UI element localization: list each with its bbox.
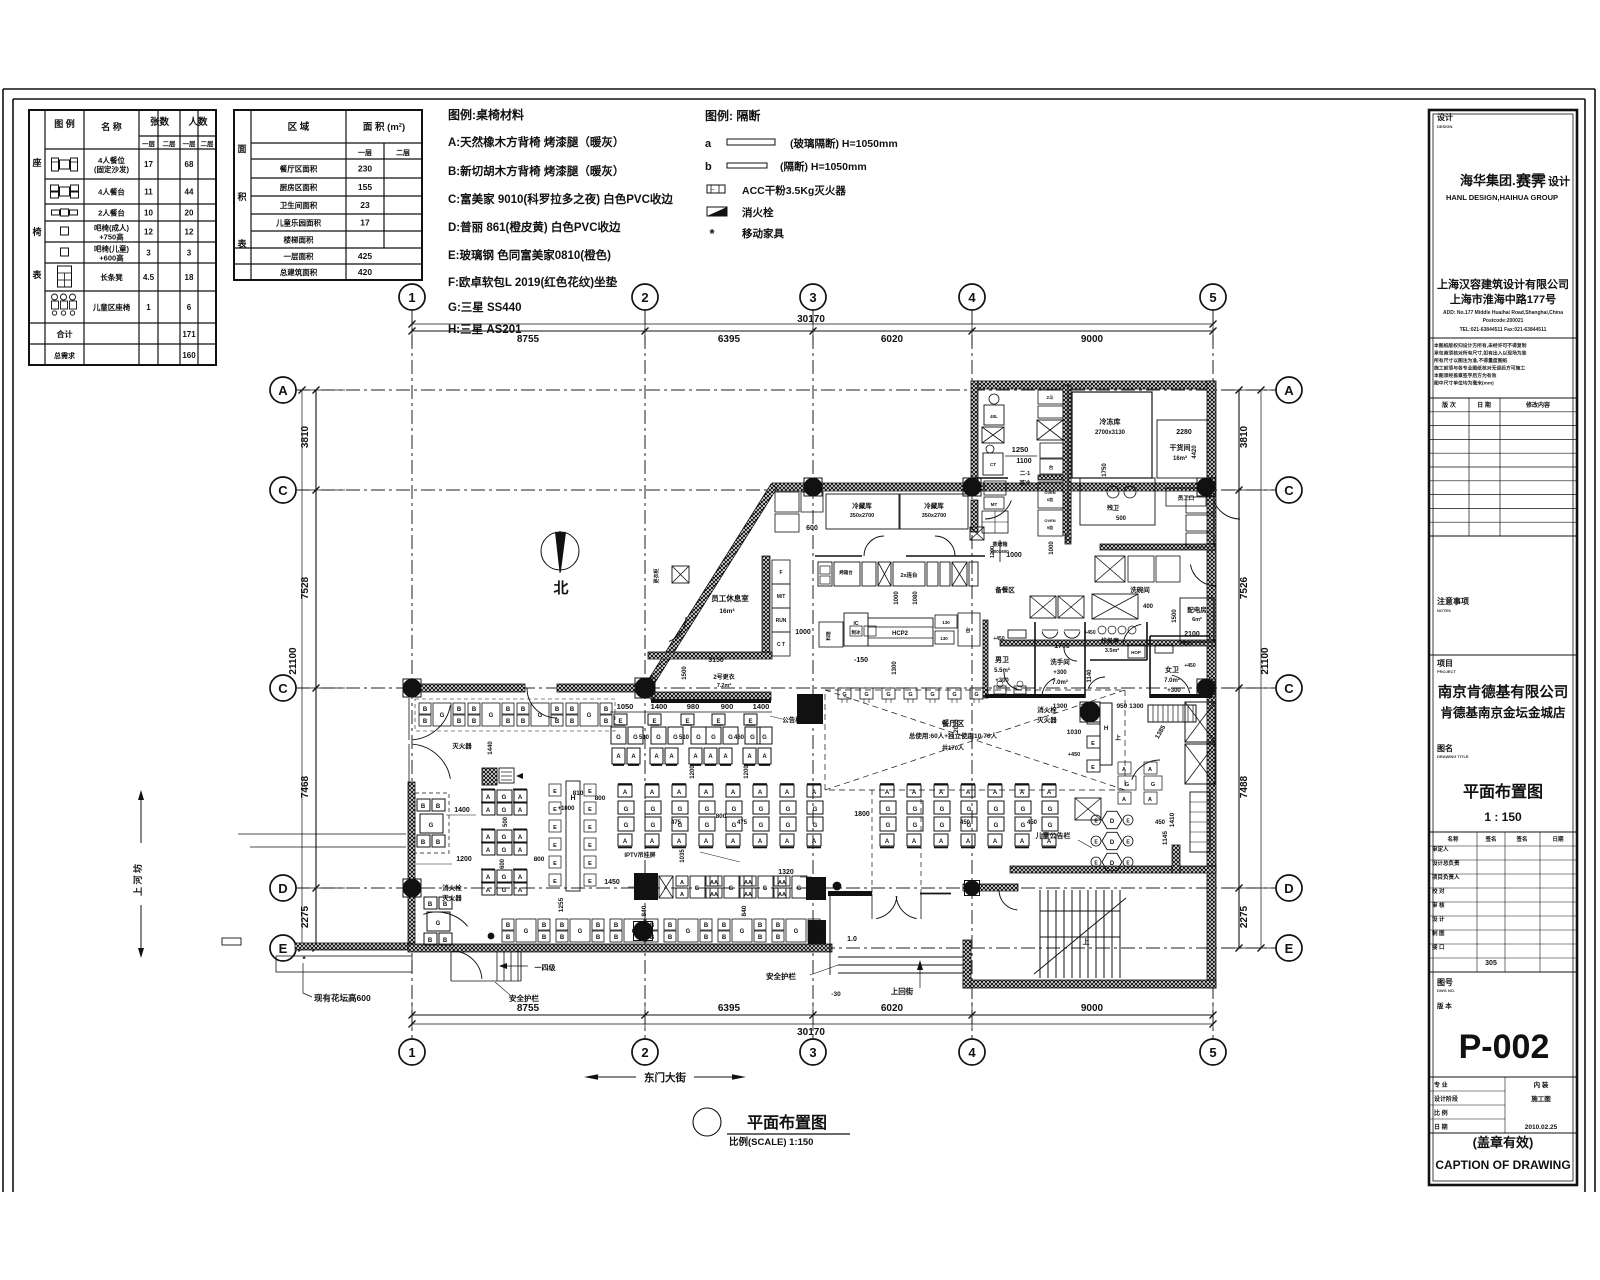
svg-text:425: 425: [358, 251, 372, 261]
svg-text:+300: +300: [1053, 670, 1067, 676]
svg-text:吧椅(儿童): 吧椅(儿童): [94, 244, 129, 254]
svg-text:8755: 8755: [517, 334, 540, 345]
svg-text:2275: 2275: [1239, 905, 1250, 928]
svg-text:5: 5: [1209, 290, 1216, 305]
svg-text:7.2m²: 7.2m²: [717, 682, 732, 689]
svg-text:HANL DESIGN,HAIHUA GROUP: HANL DESIGN,HAIHUA GROUP: [1446, 193, 1558, 202]
svg-text:30170: 30170: [797, 1027, 825, 1038]
svg-text:E: E: [588, 789, 592, 795]
svg-text:A: A: [623, 790, 628, 796]
svg-text:B: B: [457, 719, 462, 725]
svg-text:800: 800: [716, 813, 727, 820]
svg-text:5.5m²: 5.5m²: [994, 667, 1010, 674]
svg-text:二层: 二层: [201, 139, 215, 148]
svg-text:A: A: [714, 892, 718, 898]
svg-text:版 本: 版 本: [1436, 1001, 1452, 1010]
svg-text:B: B: [776, 935, 781, 941]
svg-text:G: G: [940, 823, 945, 829]
svg-text:上: 上: [1115, 734, 1121, 742]
svg-text:女卫: 女卫: [1165, 665, 1179, 674]
svg-text:G: G: [686, 929, 691, 935]
svg-text:1410: 1410: [1169, 812, 1176, 827]
svg-text:张数: 张数: [150, 116, 170, 128]
svg-text:1400: 1400: [753, 702, 770, 711]
svg-text:灭火器: 灭火器: [451, 741, 472, 750]
svg-text:B: B: [704, 935, 709, 941]
svg-text:冷藏库: 冷藏库: [852, 501, 872, 510]
svg-text:儿童公告栏: 儿童公告栏: [1035, 831, 1071, 840]
svg-text:C: C: [278, 483, 288, 498]
svg-text:2人餐台: 2人餐台: [98, 208, 125, 218]
svg-text:接 口: 接 口: [1432, 943, 1445, 951]
svg-text:A: A: [966, 790, 971, 796]
svg-text:1: 1: [408, 290, 415, 305]
svg-text:6: 6: [187, 303, 192, 312]
svg-text:E: E: [553, 879, 557, 885]
svg-text:B: B: [722, 935, 727, 941]
svg-text:B: B: [542, 923, 547, 929]
svg-text:日 期: 日 期: [1434, 1123, 1448, 1131]
svg-text:G: G: [429, 823, 434, 829]
svg-text:B: B: [436, 840, 441, 846]
svg-text:HCP2: HCP2: [892, 631, 909, 637]
svg-text:G: G: [502, 808, 507, 814]
svg-text:表: 表: [236, 238, 247, 249]
svg-text:本图纸版权归设计方所有,未经许可不得复制: 本图纸版权归设计方所有,未经许可不得复制: [1434, 342, 1527, 349]
svg-text:B: B: [472, 707, 477, 713]
svg-text:Postcode:200021: Postcode:200021: [1483, 318, 1524, 324]
svg-text:2x连台: 2x连台: [900, 571, 918, 579]
svg-text:4420: 4420: [1192, 445, 1198, 459]
svg-text:现有花坛高600: 现有花坛高600: [314, 993, 371, 1003]
svg-text:+300: +300: [1167, 688, 1181, 694]
svg-text:+450: +450: [1179, 641, 1190, 647]
svg-text:1255: 1255: [558, 897, 565, 912]
svg-text:4人餐位: 4人餐位: [98, 155, 125, 165]
svg-text:3: 3: [187, 249, 192, 258]
svg-text:签名: 签名: [1515, 835, 1527, 843]
svg-text:44: 44: [185, 188, 194, 197]
svg-text:B: B: [506, 935, 511, 941]
svg-text:G: G: [587, 713, 592, 719]
svg-text:G: G: [797, 886, 802, 892]
svg-text:7526: 7526: [1239, 576, 1250, 599]
svg-text:460: 460: [734, 735, 745, 741]
svg-text:G: G: [1048, 823, 1053, 829]
svg-text:E: E: [748, 719, 752, 725]
svg-text:E: E: [1285, 941, 1294, 956]
svg-text:MT: MT: [991, 502, 998, 507]
svg-text:A: A: [1122, 767, 1126, 773]
svg-text:B: B: [443, 902, 448, 908]
svg-text:A: A: [680, 880, 684, 886]
svg-text:G: G: [813, 807, 818, 813]
svg-text:P-002: P-002: [1459, 1028, 1550, 1066]
svg-text:安全护栏: 安全护栏: [766, 971, 796, 981]
svg-text:12: 12: [144, 228, 153, 237]
svg-text:350x2700: 350x2700: [850, 513, 874, 519]
svg-text:日期: 日期: [1552, 835, 1564, 843]
svg-text:B: B: [812, 923, 817, 929]
svg-text:PROJECT: PROJECT: [1437, 669, 1456, 674]
svg-text:G: G: [974, 692, 978, 698]
svg-text:G: G: [967, 807, 972, 813]
svg-text:A: A: [486, 888, 491, 894]
svg-text:475: 475: [671, 820, 682, 826]
svg-text:F: F: [779, 570, 782, 576]
svg-text:A: A: [704, 790, 709, 796]
svg-text:G: G: [864, 692, 868, 698]
svg-text:G: G: [711, 735, 716, 741]
svg-text:9000: 9000: [1081, 1003, 1104, 1014]
svg-text:台: 台: [965, 627, 970, 634]
svg-text:G: G: [1021, 823, 1026, 829]
svg-text:G: G: [524, 929, 529, 935]
svg-text:1200: 1200: [990, 546, 996, 558]
svg-text:8755: 8755: [517, 1003, 540, 1014]
svg-text:E: E: [553, 825, 557, 831]
svg-text:表: 表: [31, 269, 42, 280]
svg-text:2010.02.25: 2010.02.25: [1525, 1124, 1558, 1131]
svg-text:840: 840: [741, 905, 748, 916]
svg-text:TEL:021-63844511 Fax:021-63844: TEL:021-63844511 Fax:021-63844511: [1460, 327, 1547, 333]
svg-text:1000: 1000: [795, 629, 811, 636]
svg-text:450: 450: [1027, 820, 1038, 826]
svg-text:一层面积: 一层面积: [284, 251, 314, 261]
svg-text:设计: 设计: [1437, 112, 1453, 122]
svg-text:首冷: 首冷: [1019, 479, 1031, 487]
svg-text:B: B: [614, 923, 619, 929]
svg-text:E: E: [588, 825, 592, 831]
svg-text:B: B: [650, 923, 655, 929]
svg-text:2280: 2280: [1176, 429, 1192, 436]
svg-text:消火栓: 消火栓: [442, 883, 462, 892]
svg-text:A: A: [486, 795, 491, 801]
svg-text:图名: 图名: [1437, 743, 1453, 753]
svg-text:21100: 21100: [288, 647, 299, 675]
svg-text:B: B: [421, 840, 426, 846]
svg-text:审定人: 审定人: [1432, 845, 1449, 853]
svg-text:A: A: [993, 790, 998, 796]
svg-text:G: G: [705, 823, 710, 829]
svg-text:A: A: [486, 835, 491, 841]
svg-text:A: A: [782, 880, 786, 886]
svg-text:修改内容: 修改内容: [1525, 401, 1550, 409]
svg-text:北: 北: [553, 580, 568, 597]
svg-text:G: G: [1151, 782, 1155, 788]
svg-text:消火栓: 消火栓: [742, 206, 774, 219]
svg-text:D: D: [1110, 861, 1115, 867]
svg-text:G: G: [502, 888, 507, 894]
svg-text:1 : 150: 1 : 150: [1484, 810, 1522, 824]
svg-text:A: A: [812, 839, 817, 845]
svg-text:楼梯面积: 楼梯面积: [284, 235, 314, 245]
svg-text:名称: 名称: [1447, 835, 1459, 843]
svg-text:A: A: [518, 848, 523, 854]
svg-text:12: 12: [185, 228, 194, 237]
svg-text:800: 800: [595, 795, 606, 802]
svg-text:M/T: M/T: [777, 594, 786, 600]
svg-text:F:欧卓软包L 2019(红色花纹)坐垫: F:欧卓软包L 2019(红色花纹)坐垫: [448, 275, 618, 289]
svg-text:B: B: [506, 719, 511, 725]
svg-text:E: E: [553, 789, 557, 795]
svg-text:7.0m²: 7.0m²: [1164, 677, 1180, 684]
svg-text:D: D: [1110, 819, 1115, 825]
svg-text:移动家具: 移动家具: [742, 227, 784, 240]
svg-text:吧椅(成人): 吧椅(成人): [94, 223, 129, 233]
svg-text:160: 160: [182, 351, 196, 360]
svg-text:G: G: [740, 929, 745, 935]
svg-text:400: 400: [1143, 604, 1154, 610]
svg-text:上回街: 上回街: [891, 986, 914, 996]
svg-text:A:天然橡木方背椅 烤漆腿（暖灰）: A:天然橡木方背椅 烤漆腿（暖灰）: [448, 135, 624, 149]
svg-text:1800: 1800: [854, 811, 870, 818]
svg-text:A: A: [785, 790, 790, 796]
svg-text:2700x3130: 2700x3130: [1095, 430, 1126, 436]
svg-text:制冰: 制冰: [852, 629, 861, 636]
svg-text:A: A: [1122, 797, 1126, 803]
svg-text:G: G: [578, 929, 583, 935]
svg-text:A: A: [758, 839, 763, 845]
svg-text:B: B: [758, 923, 763, 929]
svg-text:长条凳: 长条凳: [100, 272, 123, 282]
svg-text:区 域: 区 域: [288, 121, 310, 133]
svg-text:E: E: [553, 861, 557, 867]
svg-text:+600高: +600高: [99, 253, 124, 263]
svg-text:B: B: [555, 707, 560, 713]
svg-text:C: C: [278, 681, 288, 696]
svg-text:2: 2: [641, 290, 648, 305]
svg-text:475: 475: [737, 820, 748, 826]
svg-text:1000: 1000: [1006, 552, 1022, 559]
svg-text:厨房区面积: 厨房区面积: [280, 182, 318, 192]
svg-text:B: B: [555, 719, 560, 725]
svg-text:A: A: [1020, 839, 1025, 845]
svg-text:A: A: [518, 875, 523, 881]
svg-text:A: A: [785, 839, 790, 845]
svg-text:G: G: [886, 692, 890, 698]
svg-text:800: 800: [534, 856, 545, 863]
svg-text:一层: 一层: [183, 139, 197, 148]
svg-text:A: A: [486, 848, 491, 854]
svg-text:图例: 隔断: 图例: 隔断: [705, 108, 760, 123]
svg-text:B: B: [506, 923, 511, 929]
svg-text:9000: 9000: [1081, 334, 1104, 345]
svg-text:+450: +450: [993, 636, 1004, 642]
svg-text:图中尺寸单位均为毫米(mm): 图中尺寸单位均为毫米(mm): [1434, 380, 1494, 387]
svg-text:1100: 1100: [1016, 458, 1031, 465]
svg-text:G: G: [436, 921, 441, 927]
svg-text:餐厅区: 餐厅区: [941, 718, 965, 728]
svg-text:OVEN: OVEN: [1044, 490, 1055, 495]
svg-text:510: 510: [639, 735, 650, 741]
svg-text:一层: 一层: [142, 139, 156, 148]
svg-text:7488: 7488: [1239, 775, 1250, 798]
svg-text:G:三星 SS440: G:三星 SS440: [448, 301, 522, 314]
svg-text:共170人: 共170人: [942, 744, 965, 752]
svg-text:305: 305: [1485, 960, 1497, 967]
svg-text:G: G: [502, 835, 507, 841]
svg-text:H: H: [1104, 726, 1108, 732]
svg-text:C:富美家 9010(科罗拉多之夜) 白色PVC收边: C:富美家 9010(科罗拉多之夜) 白色PVC收边: [448, 192, 673, 206]
svg-text:施工图: 施工图: [1531, 1094, 1551, 1103]
svg-text:A: A: [731, 839, 736, 845]
svg-text:项目负责人: 项目负责人: [1432, 873, 1460, 881]
svg-text:1200: 1200: [744, 765, 750, 779]
svg-text:设计: 设计: [1548, 174, 1570, 188]
svg-text:B: B: [650, 935, 655, 941]
svg-text:G: G: [624, 807, 629, 813]
svg-text:餐厅区面积: 餐厅区面积: [279, 164, 318, 174]
svg-text:G: G: [696, 735, 701, 741]
svg-text:G: G: [952, 692, 956, 698]
svg-text:E: E: [553, 843, 557, 849]
svg-text:B: B: [457, 707, 462, 713]
svg-text:A: A: [912, 839, 917, 845]
svg-text:A: A: [677, 839, 682, 845]
svg-text:海华集团.: 海华集团.: [1460, 173, 1516, 188]
svg-text:+450: +450: [1068, 752, 1080, 758]
svg-text:1000: 1000: [894, 591, 900, 605]
svg-text:E: E: [553, 807, 557, 813]
svg-text:DWG NO.: DWG NO.: [1437, 988, 1455, 993]
svg-text:(盖章有效): (盖章有效): [1473, 1135, 1534, 1150]
svg-text:C: C: [1284, 483, 1294, 498]
svg-text:A: A: [758, 790, 763, 796]
svg-text:本图须经盖章签字后方为有效: 本图须经盖章签字后方为有效: [1434, 372, 1497, 379]
svg-text:B: B: [506, 707, 511, 713]
svg-text:B: B: [570, 719, 575, 725]
svg-text:G: G: [489, 713, 494, 719]
svg-text:b: b: [705, 161, 712, 173]
svg-text:1440: 1440: [488, 741, 494, 755]
svg-text:A: A: [693, 754, 698, 760]
svg-text:卫生间面积: 卫生间面积: [280, 200, 318, 210]
svg-text:1035: 1035: [680, 849, 686, 863]
svg-text:上海汉容建筑设计有限公司: 上海汉容建筑设计有限公司: [1437, 277, 1569, 291]
svg-text:B:新切胡木方背椅 烤漆腿（暖灰）: B:新切胡木方背椅 烤漆腿（暖灰）: [448, 164, 624, 178]
svg-text:椅: 椅: [32, 226, 41, 237]
svg-text:68: 68: [185, 160, 194, 169]
svg-text:1700: 1700: [1054, 643, 1070, 650]
svg-text:一层: 一层: [358, 148, 372, 157]
svg-text:灭火器: 灭火器: [441, 893, 462, 902]
svg-text:E: E: [588, 843, 592, 849]
svg-text:校 对: 校 对: [1432, 887, 1445, 895]
svg-text:A: A: [723, 754, 728, 760]
svg-text:上 河 坊: 上 河 坊: [132, 864, 143, 896]
svg-text:G: G: [502, 795, 507, 801]
svg-text:内 装: 内 装: [1534, 1080, 1549, 1089]
svg-text:施工前须与各专业图纸核对无误后方可施工: 施工前须与各专业图纸核对无误后方可施工: [1434, 365, 1525, 372]
svg-text:E: E: [279, 941, 288, 956]
svg-text:G: G: [1125, 782, 1129, 788]
svg-text:500: 500: [503, 816, 509, 827]
svg-text:上: 上: [1083, 937, 1090, 946]
svg-text:B: B: [596, 935, 601, 941]
svg-text:A: A: [762, 754, 767, 760]
svg-text:16m²: 16m²: [1173, 455, 1187, 462]
svg-text:人数: 人数: [188, 116, 208, 128]
svg-text:G: G: [440, 713, 445, 719]
svg-text:420: 420: [358, 267, 372, 277]
svg-text:G: G: [732, 807, 737, 813]
svg-text:23: 23: [360, 200, 370, 210]
svg-text:二-1: 二-1: [1020, 470, 1030, 477]
svg-text:E: E: [652, 719, 656, 725]
svg-text:B: B: [423, 719, 428, 725]
svg-text:平面布置图: 平面布置图: [747, 1113, 827, 1132]
svg-text:B: B: [521, 707, 526, 713]
svg-text:4: 4: [968, 290, 976, 305]
svg-text:G: G: [786, 807, 791, 813]
svg-text:E: E: [618, 719, 622, 725]
svg-text:更衣柜: 更衣柜: [653, 568, 660, 583]
svg-text:1: 1: [146, 303, 151, 312]
svg-text:2100: 2100: [1184, 631, 1200, 638]
svg-text:B: B: [472, 719, 477, 725]
svg-text:G: G: [651, 807, 656, 813]
svg-text:4.5: 4.5: [143, 273, 155, 282]
svg-text:600: 600: [806, 525, 818, 532]
svg-text:171: 171: [182, 330, 196, 339]
svg-text:烤箱台: 烤箱台: [839, 569, 853, 576]
svg-text:30170: 30170: [797, 314, 825, 325]
svg-text:残卫: 残卫: [1107, 504, 1119, 512]
svg-text:A: A: [518, 835, 523, 841]
svg-text:G: G: [913, 807, 918, 813]
svg-text:CT: CT: [990, 462, 996, 467]
svg-text:17: 17: [144, 160, 153, 169]
svg-text:E: E: [716, 719, 720, 725]
svg-text:1140: 1140: [1087, 669, 1093, 683]
svg-text:1.0: 1.0: [847, 936, 857, 943]
svg-text:设 计: 设 计: [1432, 915, 1445, 923]
svg-text:合计: 合计: [56, 329, 73, 339]
svg-text:G: G: [624, 823, 629, 829]
svg-text:155: 155: [358, 182, 372, 192]
svg-text:B: B: [570, 707, 575, 713]
svg-text:二层: 二层: [396, 148, 410, 157]
svg-text:A: A: [650, 790, 655, 796]
svg-text:承包商须核对所有尺寸,如有出入以现场为准: 承包商须核对所有尺寸,如有出入以现场为准: [1434, 350, 1527, 357]
svg-text:B: B: [604, 719, 609, 725]
svg-text:G: G: [728, 735, 733, 741]
svg-text:一四级: 一四级: [535, 963, 557, 972]
svg-text:A: A: [616, 754, 621, 760]
svg-text:11: 11: [144, 188, 153, 197]
svg-text:G: G: [994, 823, 999, 829]
svg-text:E: E: [685, 719, 689, 725]
svg-text:A: A: [1148, 767, 1152, 773]
svg-text:G: G: [786, 823, 791, 829]
svg-text:350x2700: 350x2700: [922, 513, 946, 519]
svg-text:D: D: [1110, 840, 1115, 846]
svg-text:D: D: [1284, 881, 1293, 896]
svg-text:7.0m²: 7.0m²: [1052, 679, 1068, 686]
svg-text:冷藏库: 冷藏库: [924, 501, 944, 510]
svg-text:A: A: [518, 795, 523, 801]
svg-text:A: A: [518, 808, 523, 814]
svg-text:G: G: [794, 929, 799, 935]
svg-text:6395: 6395: [718, 334, 741, 345]
svg-text:1200: 1200: [690, 765, 696, 779]
svg-text:专 业: 专 业: [1434, 1081, 1448, 1089]
svg-text:面 积 (m²): 面 积 (m²): [363, 121, 405, 133]
svg-text:DESIGN: DESIGN: [1437, 124, 1452, 129]
svg-text:A: A: [885, 839, 890, 845]
svg-text:G: G: [763, 886, 768, 892]
